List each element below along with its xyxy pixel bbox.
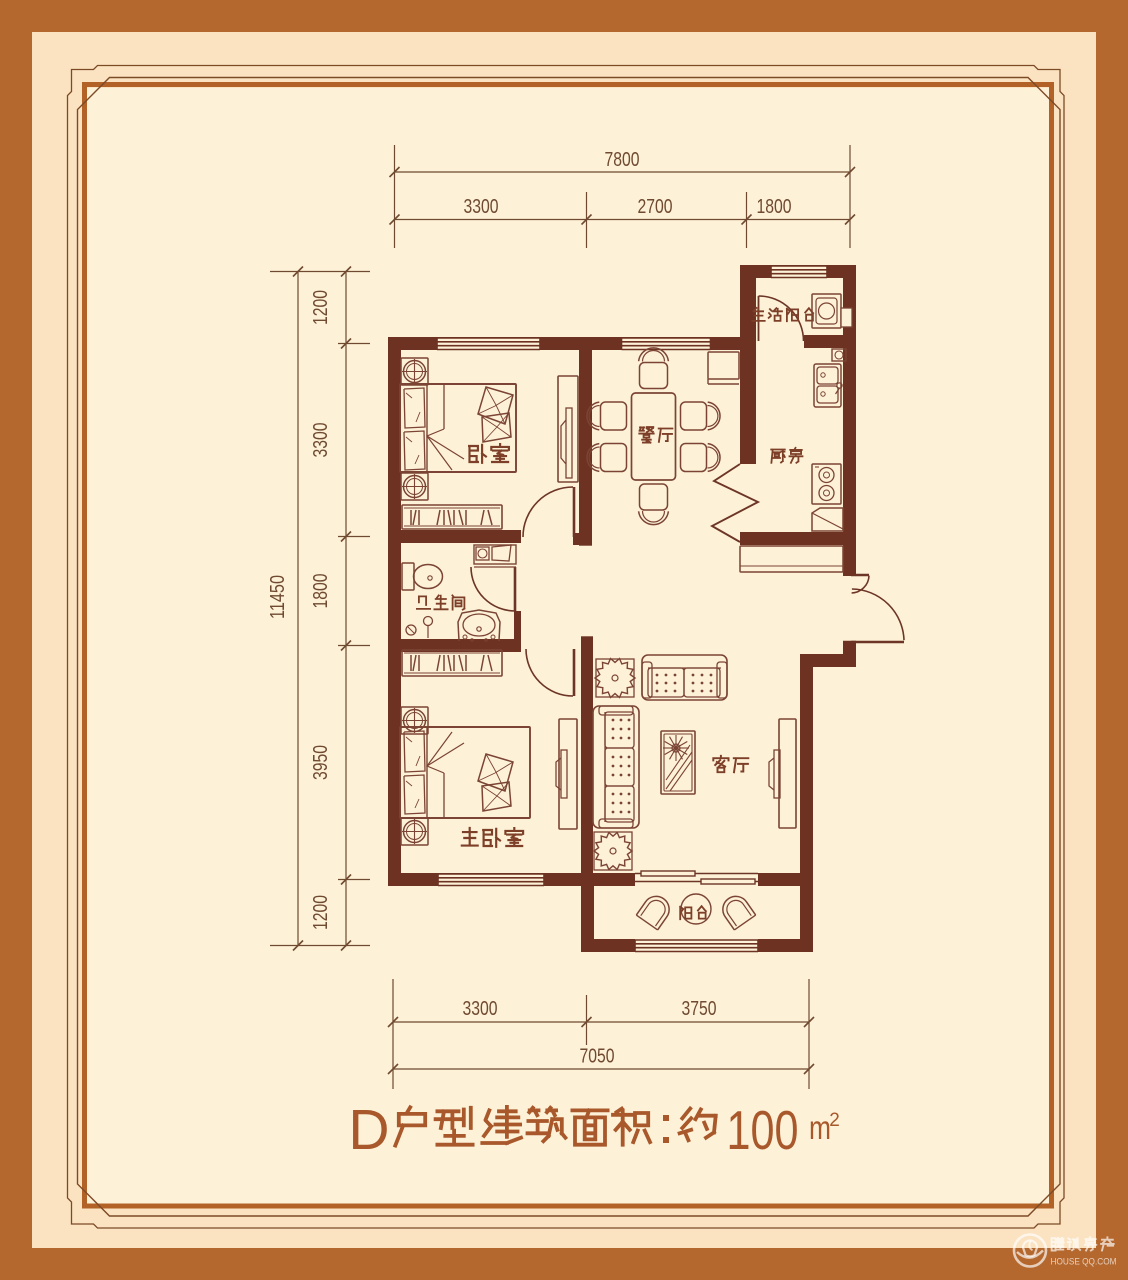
svg-text:HOUSE QQ.COM: HOUSE QQ.COM — [1051, 1257, 1117, 1268]
svg-text:1200: 1200 — [310, 895, 332, 930]
svg-text:1800: 1800 — [757, 196, 792, 218]
svg-text:3950: 3950 — [310, 745, 332, 780]
svg-text:m: m — [809, 1109, 831, 1146]
svg-text:11450: 11450 — [267, 575, 289, 619]
svg-text:2: 2 — [829, 1110, 840, 1131]
svg-text:7050: 7050 — [580, 1046, 615, 1068]
svg-text:2700: 2700 — [638, 196, 673, 218]
svg-text:1800: 1800 — [310, 574, 332, 609]
svg-text:3750: 3750 — [682, 998, 717, 1020]
svg-text:7800: 7800 — [605, 149, 640, 171]
svg-text:3300: 3300 — [310, 423, 332, 458]
svg-text:D: D — [348, 1098, 389, 1162]
svg-text:100: 100 — [727, 1099, 799, 1161]
svg-text:1200: 1200 — [310, 290, 332, 325]
svg-text:3300: 3300 — [464, 196, 499, 218]
svg-text:3300: 3300 — [463, 998, 498, 1020]
